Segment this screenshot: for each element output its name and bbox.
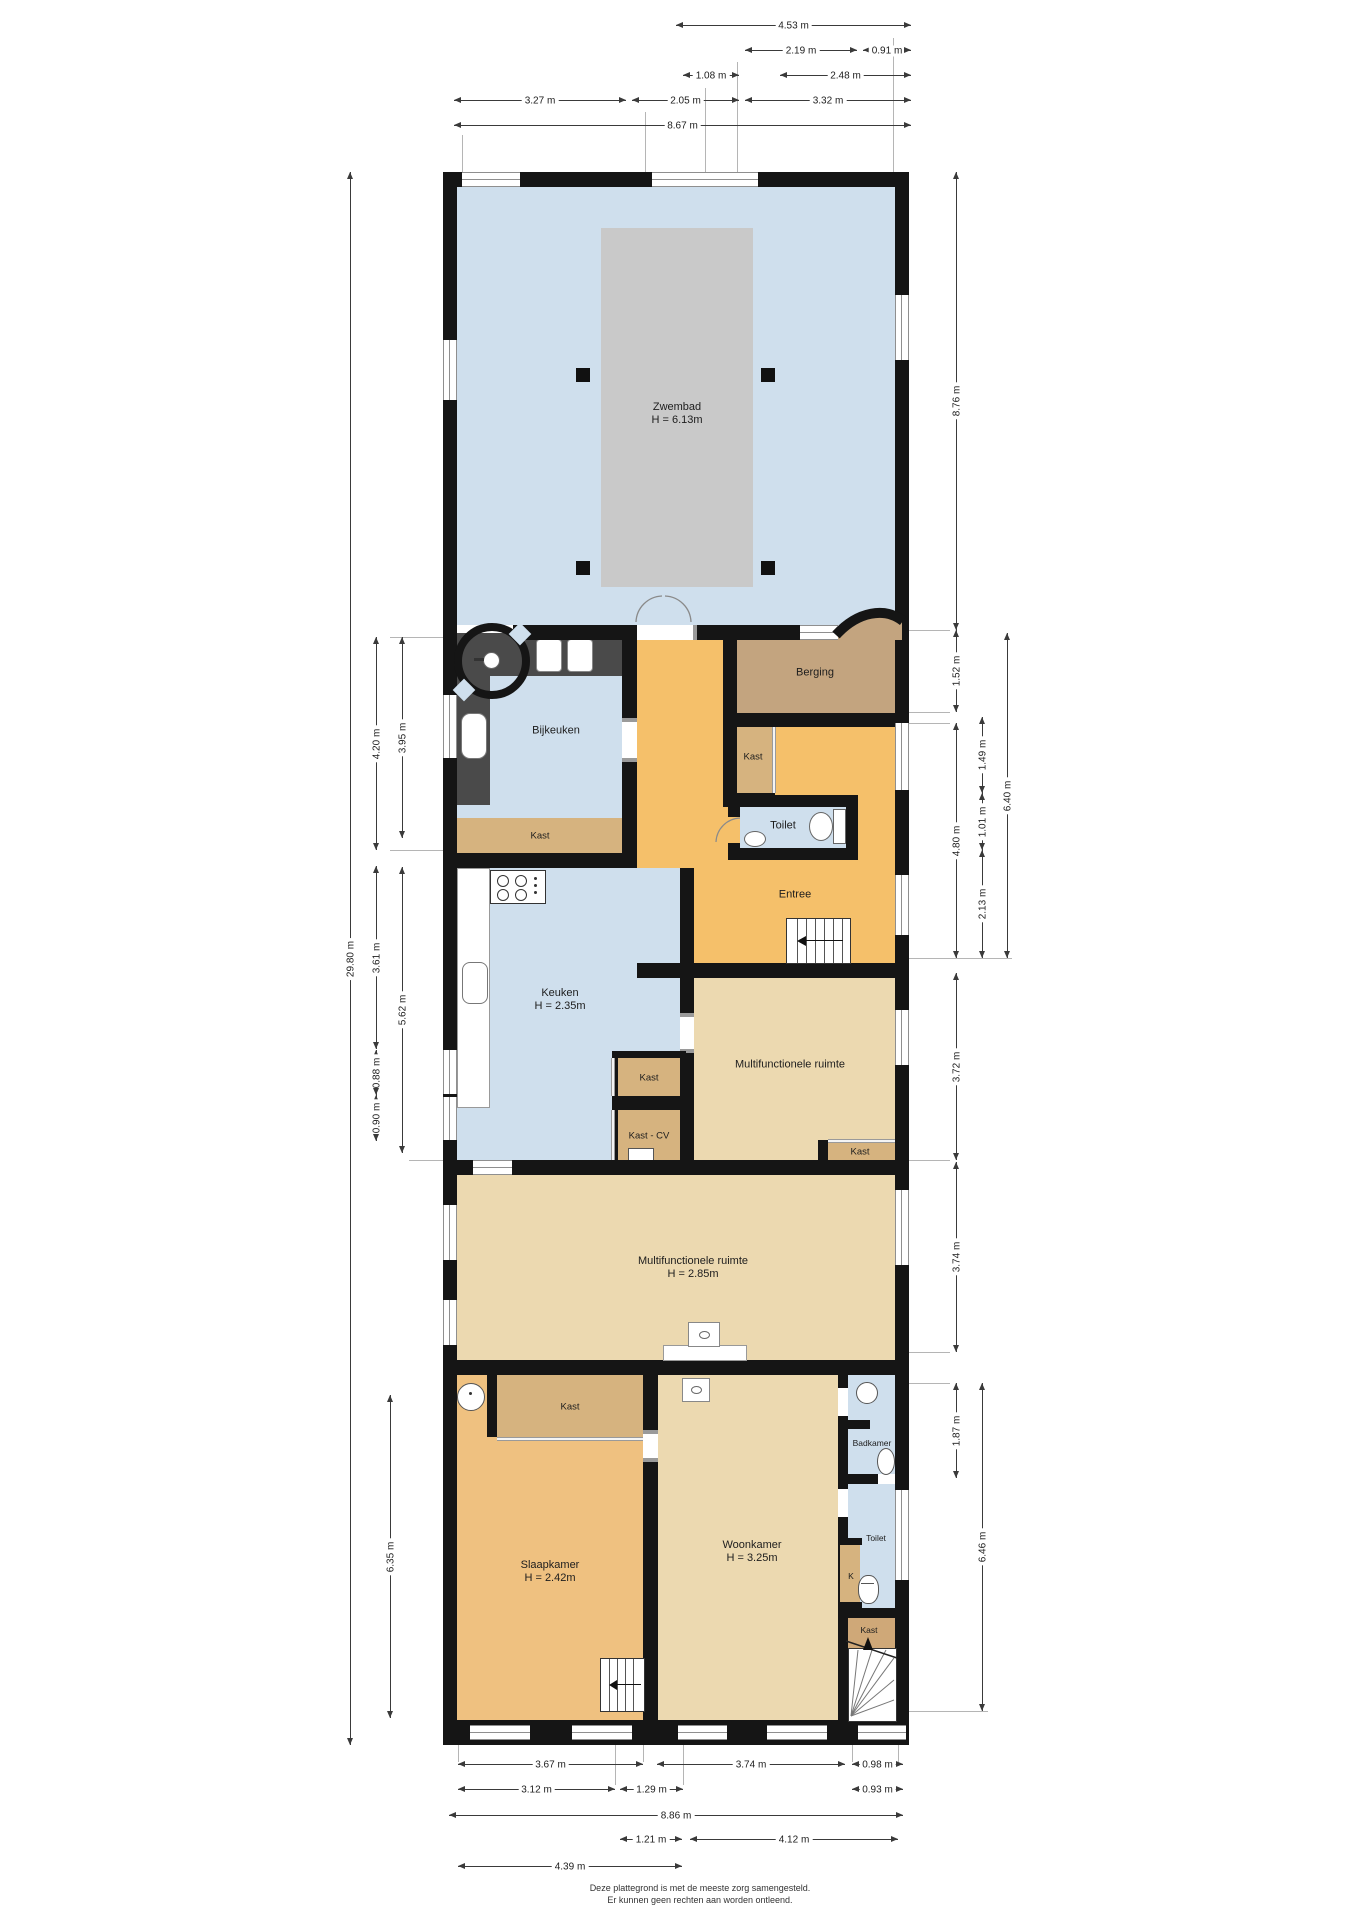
room-height: H = 6.13m (651, 414, 702, 427)
shower-stem (474, 658, 484, 661)
dimension-3-74-m: 3.74 m (956, 1162, 957, 1352)
disclaimer: Deze plattegrond is met de meeste zorg s… (590, 1882, 811, 1906)
window-berging (800, 625, 838, 640)
wall-toilet2-bottom (838, 1608, 895, 1618)
dimension-8-67-m: 8.67 m (454, 125, 911, 126)
dimension-1-08-m: 1.08 m (683, 75, 739, 76)
room-label-kast: Kast (860, 1625, 877, 1635)
dimension-label: 3.72 m (952, 1048, 963, 1085)
dimension-4-12-m: 4.12 m (690, 1839, 898, 1840)
column (761, 561, 775, 575)
window-right-pool (895, 295, 909, 360)
extension-line (898, 1745, 899, 1762)
window-left-bijkeuken (443, 695, 457, 758)
extension-line (909, 723, 950, 724)
wall-right-column-1 (838, 1375, 848, 1388)
toilet-bowl-icon (858, 1575, 879, 1604)
wall-toilet-right (846, 795, 858, 860)
dimension-label: 2.05 m (667, 96, 704, 107)
utility-sink-icon (461, 713, 487, 759)
dimension-1-21-m: 1.21 m (620, 1839, 682, 1840)
extension-line (458, 1745, 459, 1762)
wall-badkamer-toilet (848, 1474, 878, 1484)
extension-line (893, 38, 894, 172)
dimension-4-80-m: 4.80 m (956, 723, 957, 958)
dimension-2-48-m: 2.48 m (780, 75, 911, 76)
room-name: Kast (850, 1147, 869, 1158)
window-top-1 (462, 172, 520, 187)
room-name: Bijkeuken (532, 725, 580, 738)
window-top-2 (652, 172, 758, 187)
extension-line (390, 637, 443, 638)
extension-line (909, 1160, 950, 1161)
dimension-1-49-m: 1.49 m (982, 717, 983, 793)
room-label-berging: Berging (796, 667, 834, 680)
extension-line (390, 850, 443, 851)
dimension-label: 0.88 m (372, 1054, 383, 1091)
dimension-label: 3.27 m (522, 96, 559, 107)
room-name: Kast - CV (629, 1131, 670, 1142)
column (761, 368, 775, 382)
window-left-keuken-2 (443, 1097, 457, 1140)
room-label-multifunctionele-ruimte: Multifunctionele ruimte (735, 1059, 845, 1072)
room-name: Kast (860, 1625, 877, 1635)
dimension-label: 4.80 m (952, 822, 963, 859)
door-entree-pool (634, 625, 693, 640)
stairs-winder (848, 1648, 897, 1722)
room-name: Kast (560, 1402, 579, 1413)
wall-toilet-left-2 (728, 843, 740, 860)
dimension-2-05-m: 2.05 m (632, 100, 739, 101)
room-label-entree: Entree (779, 889, 811, 902)
floorplan-page: Deze plattegrond is met de meeste zorg s… (0, 0, 1358, 1920)
dimension-label: 0.91 m (869, 46, 906, 57)
room-label-bijkeuken: Bijkeuken (532, 725, 580, 738)
room-name: Multifunctionele ruimte (735, 1059, 845, 1072)
window-left-keuken-1 (443, 1050, 457, 1094)
room-label-toilet: Toilet (770, 820, 796, 833)
room-label-kast: Kast (639, 1073, 658, 1084)
dimension-3-12-m: 3.12 m (458, 1789, 615, 1790)
door-jamb (693, 625, 697, 640)
wall-bigmulti-bottom (443, 1360, 909, 1375)
dimension-1-29-m: 1.29 m (620, 1789, 683, 1790)
kast-door-line (611, 1110, 615, 1160)
wash-basin-icon (856, 1382, 878, 1404)
room-height: H = 2.85m (638, 1268, 748, 1281)
dimension-3-27-m: 3.27 m (454, 100, 626, 101)
window-left-pool (443, 340, 457, 400)
washer-icon (536, 639, 562, 672)
room-label-kast: Kast (530, 831, 549, 842)
dimension-0-88-m: 0.88 m (376, 1050, 377, 1095)
dimension-label: 1.21 m (633, 1835, 670, 1846)
dimension-label: 4.12 m (776, 1835, 813, 1846)
dimension-label: 3.74 m (733, 1760, 770, 1771)
dimension-3-74-m: 3.74 m (657, 1764, 845, 1765)
dimension-label: 3.32 m (810, 96, 847, 107)
toilet-cistern-icon (833, 809, 846, 844)
dimension-label: 1.01 m (978, 803, 989, 840)
room-name: Entree (779, 889, 811, 902)
door-jamb (643, 1430, 658, 1434)
dimension-label: 2.13 m (978, 886, 989, 923)
room-label-keuken: KeukenH = 2.35m (534, 987, 585, 1013)
extension-line (683, 1745, 684, 1785)
room-name: Toilet (866, 1533, 886, 1543)
kast-door-line (611, 1058, 615, 1096)
stove-icon (490, 870, 546, 904)
dimension-label: 6.46 m (978, 1529, 989, 1566)
toilet-bowl-icon (809, 812, 833, 841)
sink-box-icon (682, 1378, 710, 1402)
room-name: Badkamer (853, 1438, 892, 1448)
wall-left (443, 172, 457, 1745)
extension-line (909, 1383, 950, 1384)
window-left-multi-2 (443, 1300, 457, 1345)
dimension-3-95-m: 3.95 m (402, 637, 403, 838)
dimension-0-90-m: 0.90 m (376, 1095, 377, 1141)
column (576, 368, 590, 382)
wall-section-left (443, 853, 637, 868)
wall-bijkeuken-right-1 (622, 625, 637, 718)
wall-kast-slaap-left (487, 1375, 497, 1437)
dimension-label: 6.40 m (1003, 777, 1014, 814)
extension-line (615, 1745, 616, 1785)
hand-basin-icon (744, 831, 766, 847)
room-label-woonkamer: WoonkamerH = 3.25m (722, 1539, 781, 1565)
extension-line (909, 1352, 950, 1353)
window-bottom-2 (572, 1725, 632, 1740)
bath-sink-icon (877, 1448, 895, 1475)
room-name: Zwembad (651, 401, 702, 414)
dimension-label: 3.67 m (532, 1760, 569, 1771)
dimension-label: 2.19 m (783, 46, 820, 57)
dimension-1-87-m: 1.87 m (956, 1383, 957, 1478)
dimension-label: 1.29 m (633, 1785, 670, 1796)
dimension-3-67-m: 3.67 m (458, 1764, 643, 1765)
room-height: H = 2.35m (534, 1000, 585, 1013)
dimension-3-61-m: 3.61 m (376, 866, 377, 1049)
room-label-k: K (848, 1571, 854, 1581)
dimension-0-91-m: 0.91 m (863, 50, 911, 51)
room-name: Woonkamer (722, 1539, 781, 1552)
room-name: Berging (796, 667, 834, 680)
dimension-label: 1.49 m (978, 737, 989, 774)
dimension-29-80-m: 29.80 m (350, 172, 351, 1745)
dimension-4-20-m: 4.20 m (376, 637, 377, 850)
wall-bigmulti-top (443, 1160, 909, 1175)
door-jamb (643, 1458, 658, 1462)
room-label-kast: Kast (560, 1402, 579, 1413)
dimension-6-46-m: 6.46 m (982, 1383, 983, 1711)
wall-toilet-left-1 (728, 795, 740, 817)
dimension-label: 8.76 m (952, 383, 963, 420)
wall-slaap-divider-1 (643, 1375, 658, 1430)
room-label-kast: Kast (850, 1147, 869, 1158)
stairs-slaapkamer (600, 1658, 645, 1712)
room-label-slaapkamer: SlaapkamerH = 2.42m (521, 1559, 580, 1585)
dimension-label: 0.93 m (859, 1785, 896, 1796)
window-right-kast (895, 723, 909, 790)
door-jamb (622, 718, 637, 722)
sink-platform (663, 1345, 747, 1361)
window-bottom-5 (858, 1725, 906, 1740)
extension-line (909, 1711, 988, 1712)
wall-badkamer-inner (848, 1420, 870, 1429)
extension-line (737, 62, 738, 172)
wash-basin-icon (457, 1383, 485, 1411)
room-name: Slaapkamer (521, 1559, 580, 1572)
wall-pool-bottom-2 (697, 625, 800, 640)
column (576, 561, 590, 575)
extension-line (909, 958, 1012, 959)
dimension-6-35-m: 6.35 m (390, 1395, 391, 1718)
room-name: Toilet (770, 820, 796, 833)
window-interior (473, 1160, 512, 1175)
disclaimer-line1: Deze plattegrond is met de meeste zorg s… (590, 1882, 811, 1894)
room-label-zwembad: ZwembadH = 6.13m (651, 401, 702, 427)
dimension-label: 3.95 m (398, 719, 409, 756)
room-label-badkamer: Badkamer (853, 1438, 892, 1448)
door-jamb (680, 1013, 694, 1017)
room-label-kast: Kast (743, 752, 762, 763)
disclaimer-line2: Er kunnen geen rechten aan worden ontlee… (590, 1894, 811, 1906)
dimension-label: 0.98 m (859, 1760, 896, 1771)
window-right-toilet2 (895, 1490, 909, 1580)
dimension-label: 6.35 m (386, 1538, 397, 1575)
dimension-label: 8.86 m (658, 1811, 695, 1822)
room-name: Multifunctionele ruimte (638, 1255, 748, 1268)
wall-berging-bottom (723, 713, 909, 727)
dimension-3-72-m: 3.72 m (956, 973, 957, 1160)
room-name: Keuken (534, 987, 585, 1000)
dimension-0-93-m: 0.93 m (852, 1789, 903, 1790)
room-label-kast-cv: Kast - CV (629, 1131, 670, 1142)
kast-door-line (772, 727, 776, 793)
room-name: K (848, 1571, 854, 1581)
room-name: Kast (530, 831, 549, 842)
window-right-multi-small (895, 1010, 909, 1065)
wall-right-column-2 (838, 1416, 848, 1489)
dimension-8-86-m: 8.86 m (449, 1815, 903, 1816)
wall-toilet-top (728, 795, 858, 807)
dimension-4-39-m: 4.39 m (458, 1866, 682, 1867)
dimension-0-98-m: 0.98 m (852, 1764, 903, 1765)
window-bottom-4 (767, 1725, 827, 1740)
extension-line (643, 1745, 644, 1762)
extension-line (645, 112, 646, 172)
extension-line (909, 712, 950, 713)
wall-slaap-divider-2 (643, 1462, 658, 1720)
kitchen-sink-icon (462, 962, 488, 1004)
room-label-toilet: Toilet (866, 1533, 886, 1543)
window-left-multi-1 (443, 1205, 457, 1260)
extension-line (852, 1745, 853, 1762)
wall-toilet-bottom (728, 848, 858, 860)
wall-keuken-right-1 (680, 868, 694, 1013)
kast-door-line (497, 1437, 643, 1441)
dimension-1-52-m: 1.52 m (956, 630, 957, 712)
extension-line (909, 630, 950, 631)
extension-line (409, 1160, 443, 1161)
room-name: Kast (639, 1073, 658, 1084)
dimension-label: 3.12 m (518, 1785, 555, 1796)
dimension-label: 1.52 m (952, 653, 963, 690)
window-right-multi-big (895, 1190, 909, 1265)
dimension-1-01-m: 1.01 m (982, 793, 983, 850)
dimension-8-76-m: 8.76 m (956, 172, 957, 630)
extension-line (462, 135, 463, 172)
window-bottom-1 (470, 1725, 530, 1740)
dimension-label: 1.87 m (952, 1412, 963, 1449)
door-jamb (622, 758, 637, 762)
dimension-6-40-m: 6.40 m (1007, 633, 1008, 958)
stairs-entree (786, 918, 851, 964)
window-right-entree (895, 875, 909, 935)
room-label-multifunctionele-ruimte: Multifunctionele ruimteH = 2.85m (638, 1255, 748, 1281)
kast-door-line (828, 1139, 895, 1143)
shower-head-icon (483, 652, 500, 669)
dimension-label: 1.08 m (693, 71, 730, 82)
dimension-3-32-m: 3.32 m (745, 100, 911, 101)
dimension-label: 8.67 m (664, 121, 701, 132)
door-badkamer-toilet (878, 1474, 895, 1484)
dimension-2-13-m: 2.13 m (982, 850, 983, 958)
dimension-label: 4.39 m (552, 1862, 589, 1873)
wall-kcloset-top (838, 1538, 862, 1545)
dimension-label: 3.74 m (952, 1239, 963, 1276)
wall-entree-bottom (637, 963, 895, 978)
dimension-label: 4.20 m (372, 725, 383, 762)
dimension-2-19-m: 2.19 m (745, 50, 857, 51)
dimension-label: 0.90 m (372, 1100, 383, 1137)
dimension-label: 3.61 m (372, 939, 383, 976)
room-height: H = 2.42m (521, 1572, 580, 1585)
room-name: Kast (743, 752, 762, 763)
dimension-label: 5.62 m (398, 992, 409, 1029)
dimension-label: 29.80 m (346, 937, 357, 979)
room-height: H = 3.25m (722, 1552, 781, 1565)
dimension-4-53-m: 4.53 m (676, 25, 911, 26)
dimension-label: 4.53 m (775, 21, 812, 32)
dimension-5-62-m: 5.62 m (402, 867, 403, 1153)
dimension-label: 2.48 m (827, 71, 864, 82)
sink-box-icon (688, 1322, 720, 1347)
window-bottom-3 (678, 1725, 727, 1740)
dryer-icon (567, 639, 593, 672)
